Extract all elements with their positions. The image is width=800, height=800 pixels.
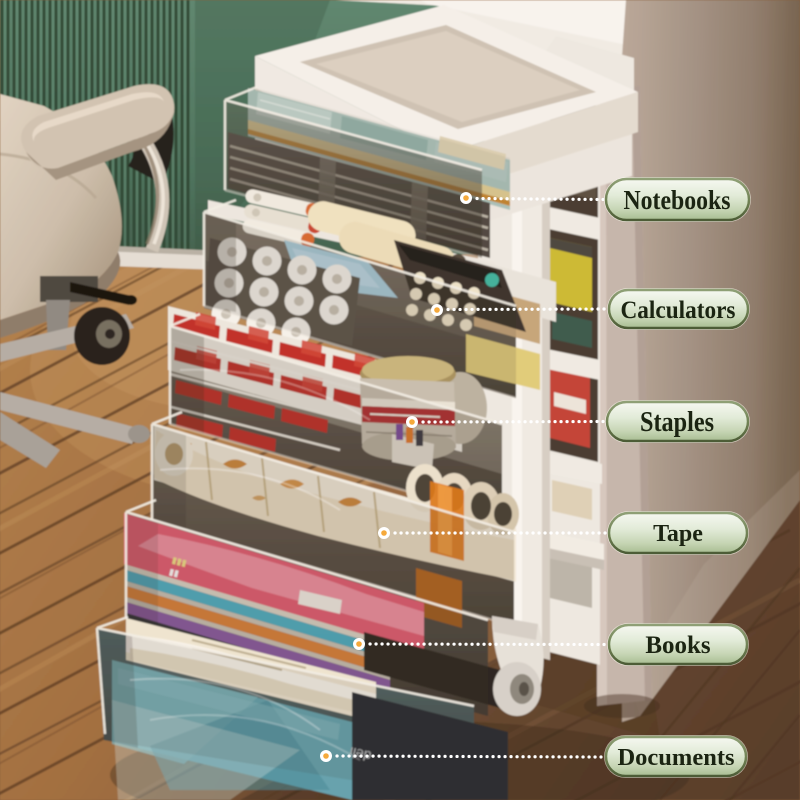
svg-text:Documents: Documents: [618, 745, 735, 771]
svg-text:Staples: Staples: [640, 407, 714, 438]
svg-text:Notebooks: Notebooks: [624, 185, 731, 215]
svg-text:Calculators: Calculators: [621, 297, 736, 324]
svg-text:Tape: Tape: [653, 521, 703, 547]
svg-text:Books: Books: [645, 632, 711, 659]
